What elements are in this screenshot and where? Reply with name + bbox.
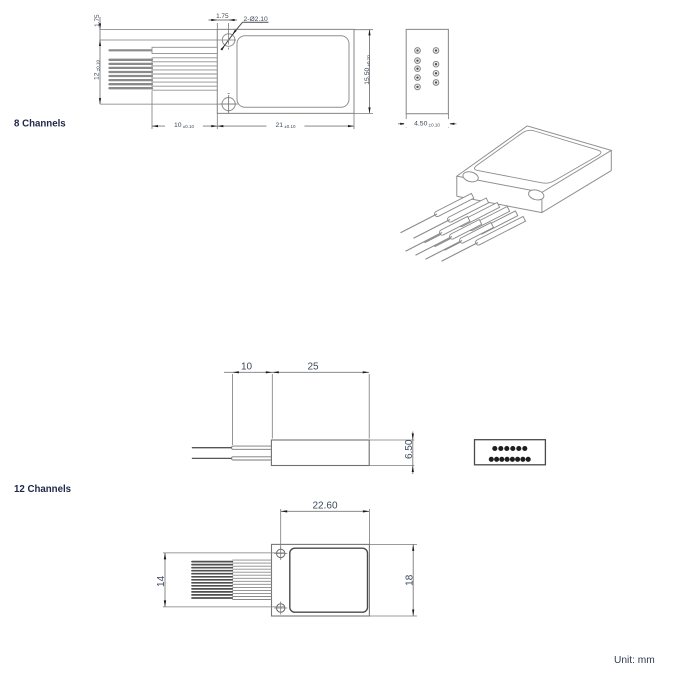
svg-text:14: 14	[156, 575, 167, 587]
svg-text:15.50 ±0.10: 15.50 ±0.10	[364, 55, 371, 85]
svg-text:12 Channels: 12 Channels	[14, 484, 71, 495]
svg-text:10: 10	[241, 362, 253, 373]
svg-text:2-Ø2.10: 2-Ø2.10	[244, 16, 268, 23]
svg-text:22.60: 22.60	[312, 501, 337, 512]
svg-text:25: 25	[307, 362, 319, 373]
svg-text:18: 18	[405, 574, 416, 586]
svg-text:10 ±0.10: 10 ±0.10	[174, 122, 195, 129]
svg-text:21 ±0.10: 21 ±0.10	[275, 122, 296, 129]
svg-text:1.75: 1.75	[216, 13, 229, 20]
svg-text:12 ±0.10: 12 ±0.10	[93, 59, 100, 80]
svg-text:8 Channels: 8 Channels	[14, 119, 66, 130]
svg-text:Unit: mm: Unit: mm	[614, 655, 655, 666]
svg-text:6.50: 6.50	[404, 439, 415, 459]
svg-text:1.75: 1.75	[94, 14, 101, 27]
svg-text:4.50 ±0.10: 4.50 ±0.10	[414, 121, 440, 128]
